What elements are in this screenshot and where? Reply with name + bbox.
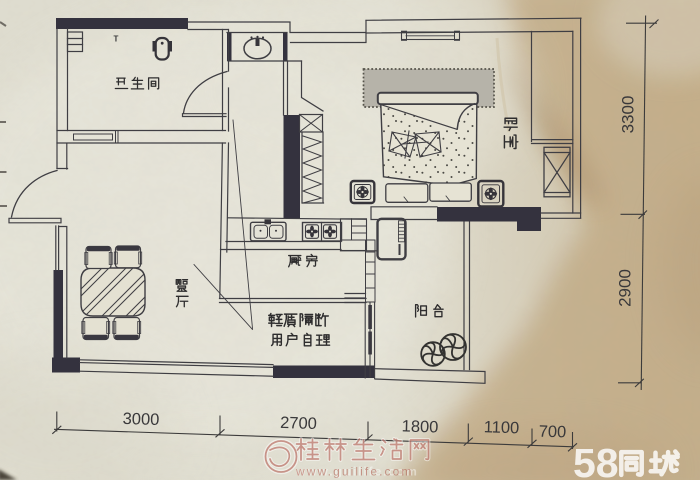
- svg-text:58: 58: [573, 440, 619, 480]
- svg-text:www.guilife.com: www.guilife.com: [295, 465, 414, 479]
- svg-text:2900: 2900: [616, 269, 635, 307]
- svg-text:T: T: [114, 35, 119, 44]
- svg-text:3300: 3300: [619, 96, 638, 134]
- svg-text:1100: 1100: [483, 418, 519, 437]
- svg-text:1800: 1800: [401, 417, 438, 436]
- svg-text:2700: 2700: [280, 414, 317, 433]
- svg-text:700: 700: [538, 423, 566, 442]
- svg-text:3000: 3000: [122, 410, 159, 429]
